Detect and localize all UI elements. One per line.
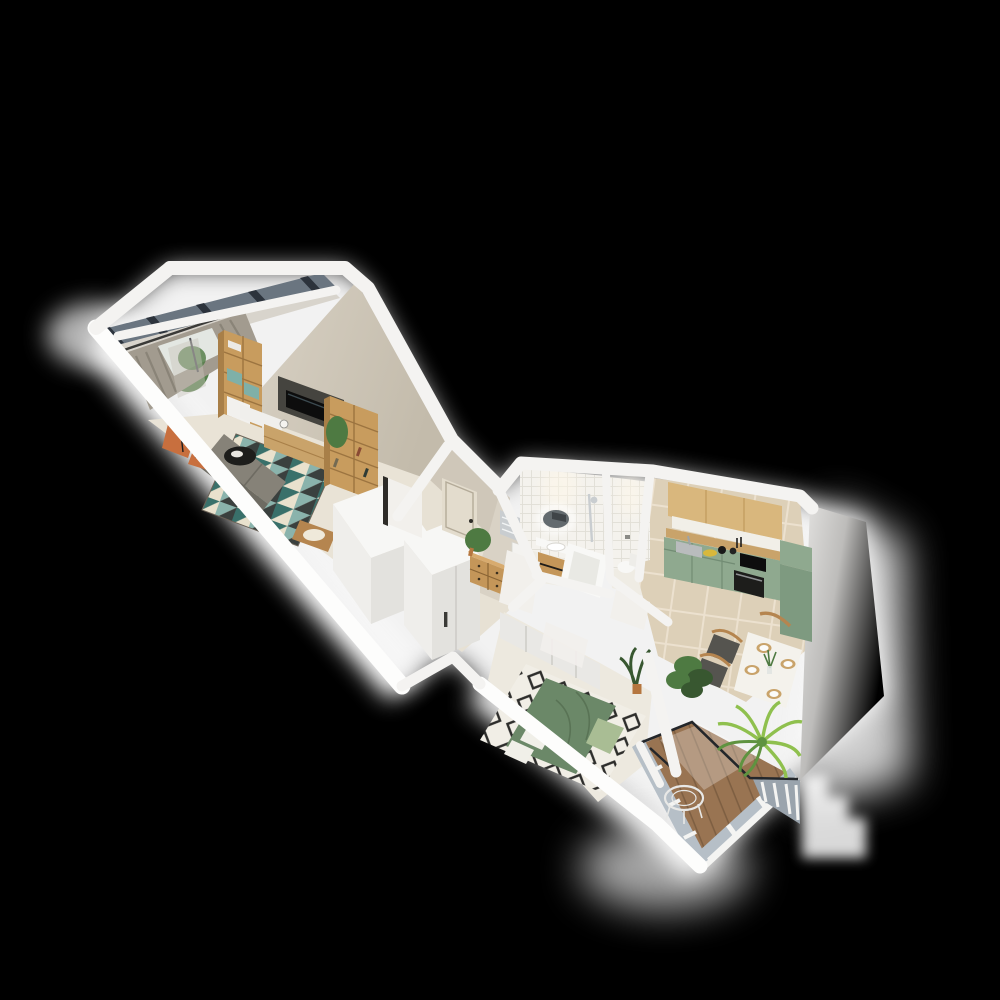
fruit-bowl <box>703 549 717 556</box>
dresser-plant-pot <box>470 548 472 556</box>
wall-clock <box>280 420 288 428</box>
dresser-plant <box>465 528 491 552</box>
bookshelf-teal-side <box>218 330 224 418</box>
floorplan-render-stage <box>0 0 1000 1000</box>
interior-door-gap <box>383 476 388 526</box>
armchair-cushion <box>303 529 325 541</box>
apartment-3d-floorplan <box>0 0 1000 1000</box>
toilet-paper-holder <box>625 535 630 539</box>
closet-door-handle <box>444 612 447 627</box>
tall-cabinet-lower <box>780 564 812 642</box>
glass-vase <box>767 666 772 674</box>
kettle <box>718 546 726 554</box>
coffee-table-magazine <box>231 451 243 458</box>
vanity-sink <box>547 543 565 551</box>
entrance-door-handle <box>469 519 473 523</box>
living-room-plant <box>326 416 348 448</box>
bath-wc-partition <box>606 474 610 578</box>
pot <box>730 548 737 555</box>
shower-head <box>591 497 598 504</box>
wc-light <box>618 475 642 515</box>
